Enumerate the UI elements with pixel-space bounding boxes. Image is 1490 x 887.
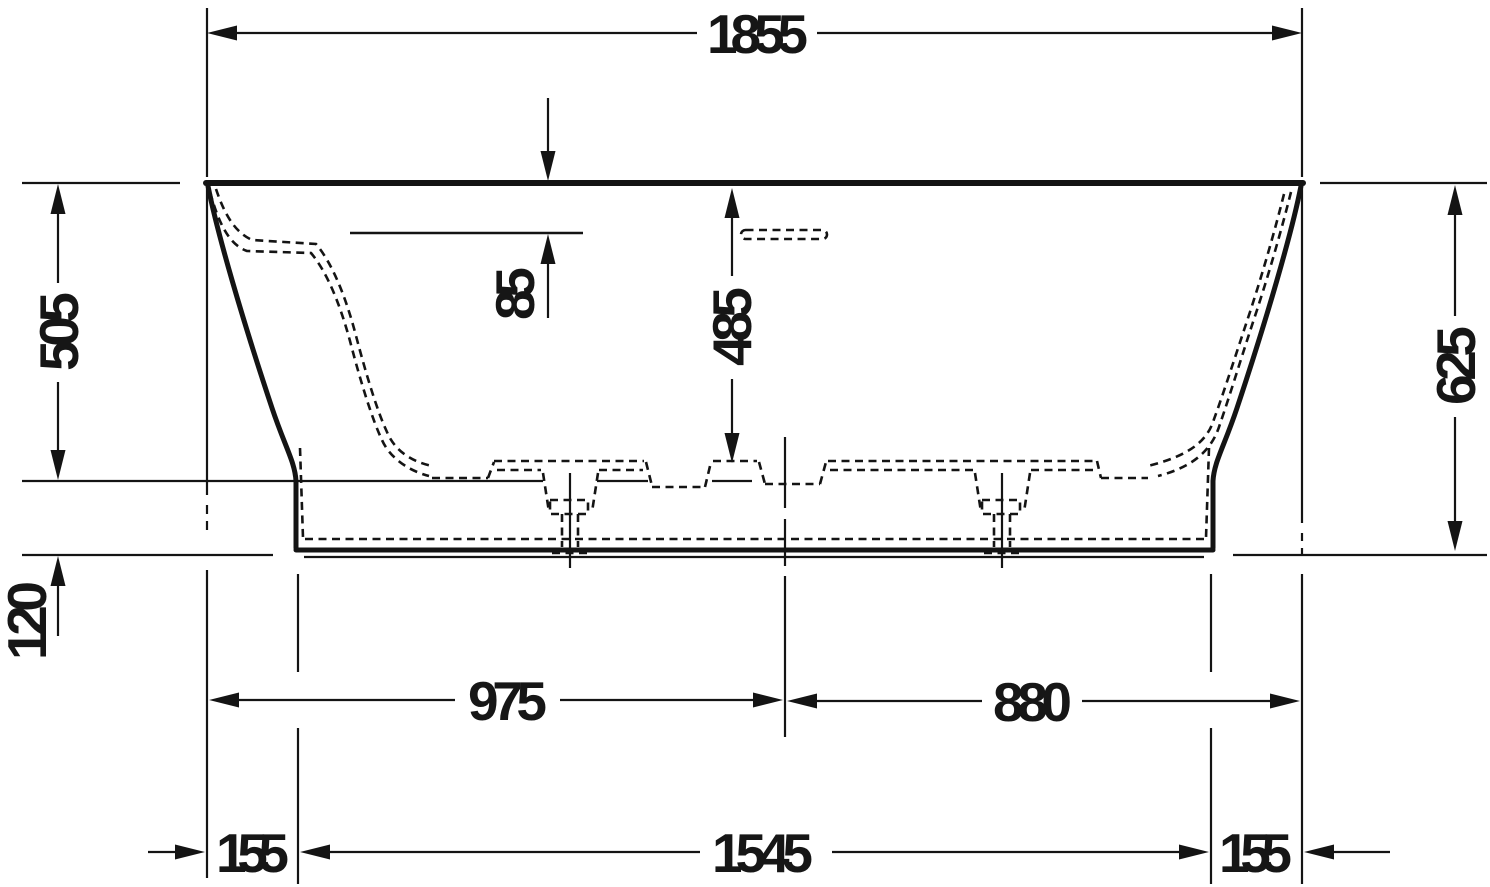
dim-center-from-left-label: 975 [468,670,546,732]
hidden-edges [210,189,1291,553]
right-inner-shell-outer [1158,192,1291,476]
dim-inner-depth-label: 485 [701,288,763,366]
right-outer-wall [1213,186,1301,548]
dim-overall-width-label: 1855 [707,3,807,65]
dim-base-inset-right-label: 155 [1219,822,1291,884]
left-outer-wall [208,186,296,548]
dim-base-inset-right [1304,845,1390,860]
sump-recess-right [759,462,826,484]
bathtub-technical-drawing: 1855 505 120 85 485 [0,0,1490,887]
sump-recess-left [646,462,711,487]
overflow-slot [741,230,827,239]
dim-base-inset-left [148,845,205,860]
dim-rim-to-sump-label: 505 [28,293,90,371]
dim-base-inset-left-label: 155 [216,822,288,884]
drawing-canvas: 1855 505 120 85 485 [0,0,1490,887]
dimensions: 1855 505 120 85 485 [0,3,1487,884]
dim-base-length-label: 1545 [712,822,812,884]
dim-plinth-height-label: 120 [0,582,58,660]
dim-rim-to-ledge-label: 85 [484,268,546,320]
dim-overall-height-label: 625 [1425,327,1487,405]
tub-outline [206,183,1303,557]
dim-center-from-right-label: 880 [993,671,1071,733]
extension-lines [22,8,1487,884]
left-inner-shell-outer [210,192,429,476]
